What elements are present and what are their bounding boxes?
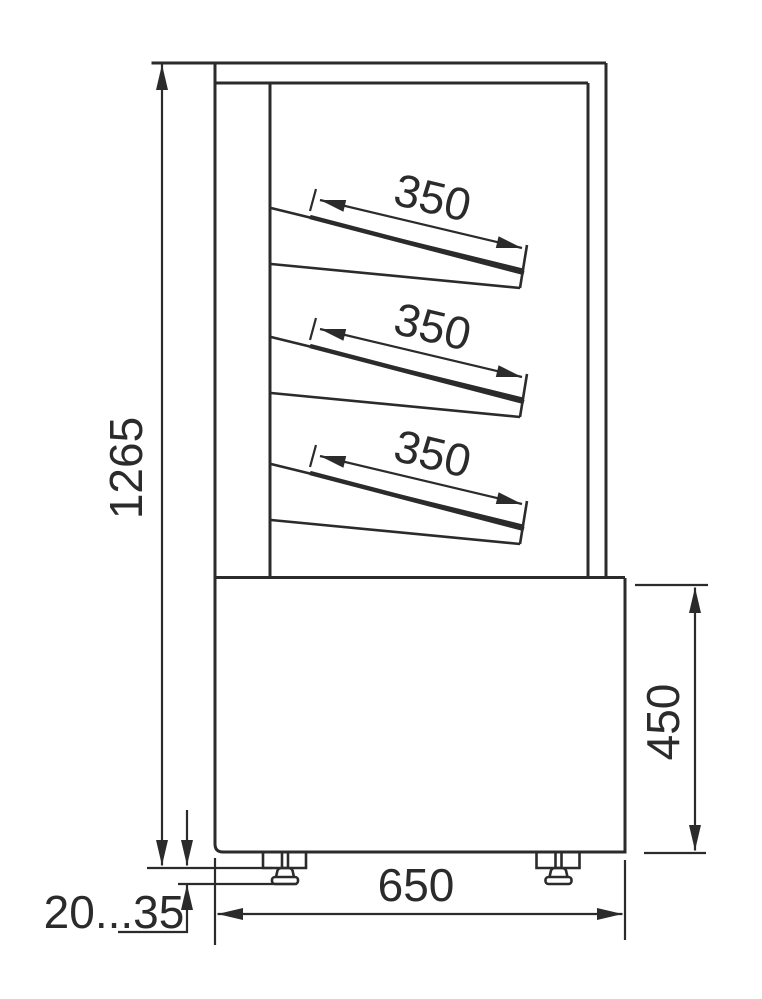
shelf-2-depth-label: 350 [389,292,476,360]
dim-base-height: 450 [635,585,708,853]
overall-height-label: 1265 [100,417,152,519]
shelf-1-depth-label: 350 [389,163,476,231]
dim-leg-adjustment: 20...35 [44,810,297,938]
shelf-3-depth-label: 350 [389,419,476,487]
base-outline [215,578,625,852]
shelves: 350 350 350 [271,163,527,544]
cabinet-outline [152,63,626,852]
right-foot [537,852,580,884]
leg-adjustment-label: 20...35 [44,886,185,938]
base-height-label: 450 [637,684,689,761]
base-depth-label: 650 [378,859,455,911]
technical-drawing-page: 350 350 350 1265 20...35 450 650 [0,0,762,999]
dim-overall-height: 1265 [100,65,162,866]
display-case-side-view-drawing: 350 350 350 1265 20...35 450 650 [0,0,762,999]
